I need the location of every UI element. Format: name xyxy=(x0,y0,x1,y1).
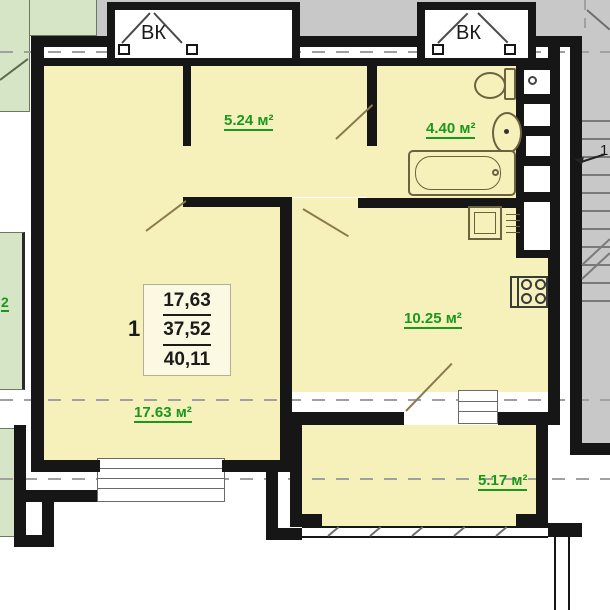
edge-line xyxy=(554,537,556,610)
burner-icon xyxy=(535,279,546,290)
toilet-bowl-icon xyxy=(474,72,506,99)
wall-balcony-approach xyxy=(266,472,278,540)
wall-stairwell xyxy=(570,36,582,455)
living-window xyxy=(97,458,225,502)
axis-line-vertical xyxy=(584,0,586,36)
wall-left xyxy=(31,47,44,472)
stairwell-area xyxy=(582,36,610,443)
vent-window-mark xyxy=(186,44,198,55)
wall-living-bottom-right xyxy=(222,460,280,472)
shaft-opening xyxy=(522,68,552,96)
stair-step xyxy=(582,138,610,140)
area-living-value: 17,63 xyxy=(163,287,211,317)
vent-window-mark xyxy=(504,44,516,55)
drainer-line xyxy=(506,226,520,227)
stair-step xyxy=(582,174,610,176)
burner-icon xyxy=(521,293,532,304)
wall-top-segment xyxy=(292,36,425,47)
living-window-line xyxy=(98,488,224,489)
stair-direction-label: 1 xyxy=(600,142,608,159)
vent-shaft-label-2: ВК xyxy=(456,22,481,45)
shaft-opening xyxy=(522,164,552,194)
wall-living-bottom-left xyxy=(31,460,100,472)
wall-entry-vertical xyxy=(14,425,26,547)
neighbor-area-label-partial: 2 xyxy=(1,294,9,312)
stair-step xyxy=(582,120,610,122)
stair-step xyxy=(582,282,610,284)
sink-drain-icon xyxy=(504,129,509,134)
wall-entry-horizontal xyxy=(26,490,97,502)
wall-connector-right xyxy=(548,523,582,537)
kitchen-balcony-window-line xyxy=(459,411,497,412)
wall-top-segment xyxy=(31,36,115,47)
bathtub-inner-icon xyxy=(415,156,501,190)
wall-hall-bottom xyxy=(183,197,280,207)
bathroom-area-label: 4.40 м² xyxy=(426,120,475,139)
wall-balcony-top-left xyxy=(292,412,404,425)
hall-area-label: 5.24 м² xyxy=(224,112,273,131)
apartment-number-label: 1 xyxy=(128,316,140,342)
kitchen-balcony-window-line xyxy=(459,401,497,402)
area-overall-value: 40,11 xyxy=(164,346,211,374)
living-window-line xyxy=(98,478,224,479)
edge-line xyxy=(568,537,570,610)
living-window-line xyxy=(98,468,224,469)
wall-top-inner xyxy=(44,58,556,66)
vent-hole-icon xyxy=(528,76,537,85)
wall-entry-foot xyxy=(14,535,54,547)
vent-shaft-label-1: ВК xyxy=(141,22,166,45)
neighbor-apartment-left-upper xyxy=(0,0,30,112)
kitchen-area-label: 10.25 м² xyxy=(404,310,462,329)
vent-window-mark xyxy=(118,44,130,55)
wall-balcony-right xyxy=(536,412,548,527)
floor-plan: 1 ВК ВК 5.24 м² 4.40 м² 10.25 м² 17.63 м… xyxy=(0,0,610,610)
stair-step xyxy=(582,192,610,194)
vent-window-mark xyxy=(432,44,444,55)
drainer-line xyxy=(506,232,520,233)
area-total-value: 37,52 xyxy=(163,316,211,346)
wall-balcony-left xyxy=(290,412,302,527)
room-hall xyxy=(190,66,367,197)
drainer-line xyxy=(506,214,520,215)
burner-icon xyxy=(521,279,532,290)
axis-line-middle xyxy=(0,399,610,401)
vent-shaft-niche-1 xyxy=(107,2,300,58)
stair-step xyxy=(582,210,610,212)
area-table: 17,63 37,52 40,11 xyxy=(143,284,231,376)
bathtub-drain-icon xyxy=(492,169,499,176)
burner-icon xyxy=(535,293,546,304)
balcony-area-label: 5.17 м² xyxy=(478,472,527,491)
kitchen-balcony-window xyxy=(458,390,498,424)
kitchen-sink-inner-icon xyxy=(474,212,496,234)
wall-stairwell-bottom xyxy=(570,443,610,455)
wall-balcony-jog-left-outer xyxy=(278,528,302,540)
shaft-opening xyxy=(524,134,552,158)
toilet-tank-icon xyxy=(504,68,516,100)
shaft-opening xyxy=(522,102,552,128)
drainer-line xyxy=(506,220,520,221)
living-area-label: 17.63 м² xyxy=(134,404,192,423)
stove-panel-line xyxy=(517,276,519,308)
stair-step xyxy=(582,228,610,230)
stair-step xyxy=(582,246,610,248)
shaft-opening xyxy=(522,200,552,252)
stair-step xyxy=(582,300,610,302)
wall-hall-left xyxy=(183,66,191,146)
